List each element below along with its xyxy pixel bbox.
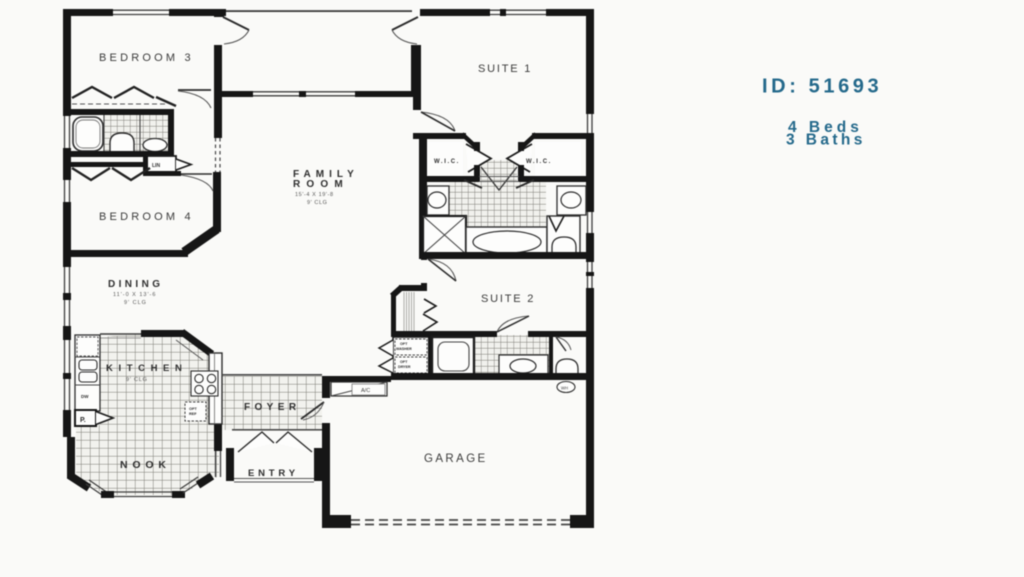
svg-text:REF: REF bbox=[189, 412, 197, 416]
svg-text:15'-4 X 19'-8: 15'-4 X 19'-8 bbox=[295, 192, 334, 198]
svg-text:11'-0 X 13'-6: 11'-0 X 13'-6 bbox=[113, 292, 156, 298]
svg-text:DW: DW bbox=[81, 394, 89, 399]
svg-text:OPT: OPT bbox=[400, 360, 408, 364]
svg-text:P.: P. bbox=[80, 417, 86, 424]
svg-text:9' CLG: 9' CLG bbox=[126, 377, 148, 383]
svg-text:9' CLG: 9' CLG bbox=[124, 300, 147, 306]
svg-text:WASHER: WASHER bbox=[396, 347, 412, 351]
svg-text:FOYER: FOYER bbox=[244, 402, 300, 413]
svg-text:DINING: DINING bbox=[108, 279, 163, 290]
svg-text:ENTRY: ENTRY bbox=[248, 468, 299, 479]
svg-text:LIN: LIN bbox=[152, 163, 160, 169]
svg-text:W.I.C.: W.I.C. bbox=[434, 159, 460, 165]
svg-text:NOOK: NOOK bbox=[120, 459, 171, 471]
svg-text:3 Baths: 3 Baths bbox=[786, 132, 866, 149]
svg-text:ROOM: ROOM bbox=[293, 179, 349, 190]
svg-text:OPT: OPT bbox=[189, 407, 197, 411]
svg-text:9' CLG: 9' CLG bbox=[307, 200, 328, 206]
svg-text:SUITE 2: SUITE 2 bbox=[481, 293, 535, 305]
svg-text:BEDROOM 3: BEDROOM 3 bbox=[99, 52, 194, 64]
svg-text:WH: WH bbox=[561, 386, 568, 391]
svg-text:OPT: OPT bbox=[400, 342, 408, 346]
svg-text:DRYER: DRYER bbox=[398, 365, 411, 369]
svg-text:W.I.C.: W.I.C. bbox=[526, 159, 552, 165]
svg-text:ID: 51693: ID: 51693 bbox=[762, 76, 882, 98]
svg-text:A/C: A/C bbox=[361, 388, 370, 394]
svg-text:SUITE 1: SUITE 1 bbox=[478, 63, 532, 75]
svg-text:BEDROOM 4: BEDROOM 4 bbox=[99, 211, 194, 223]
svg-text:GARAGE: GARAGE bbox=[424, 453, 488, 465]
svg-text:KITCHEN: KITCHEN bbox=[106, 363, 187, 374]
